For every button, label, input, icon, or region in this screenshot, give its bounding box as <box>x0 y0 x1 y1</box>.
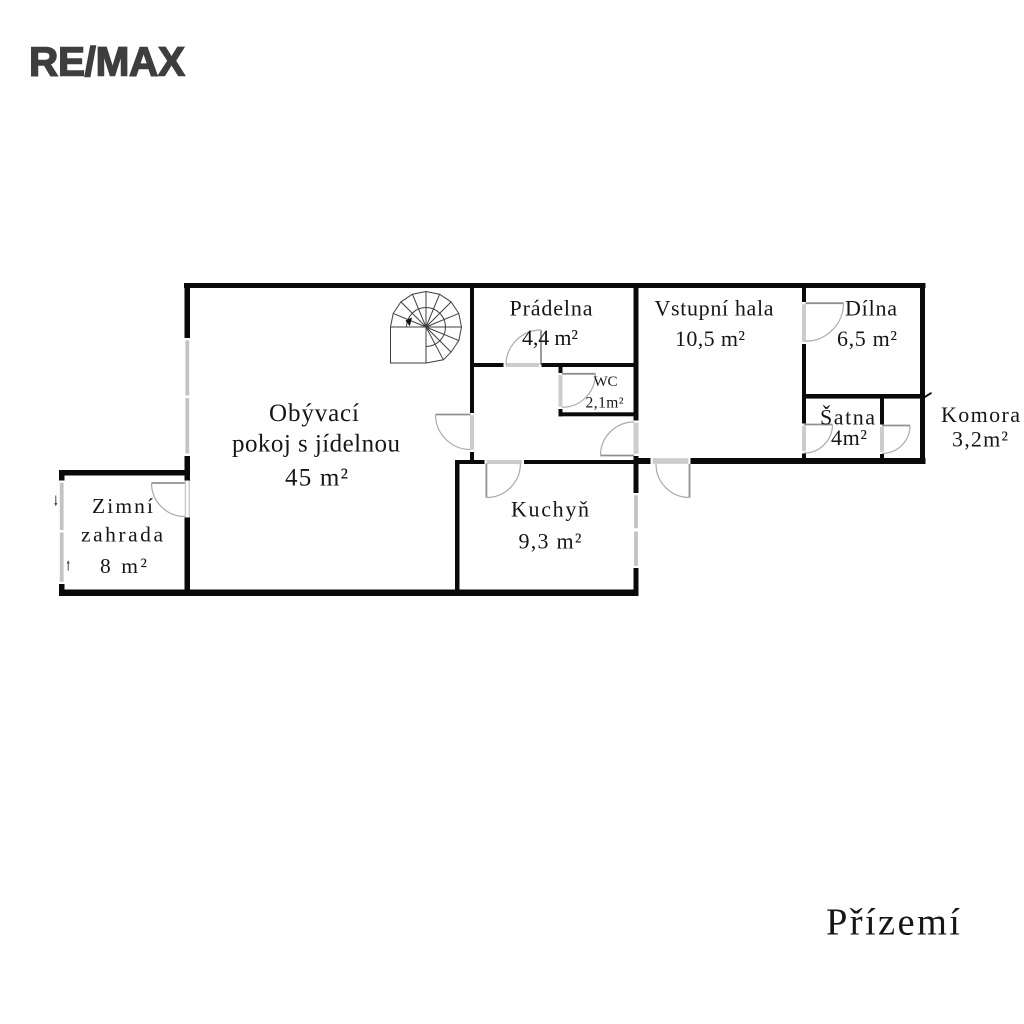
svg-text:6,5 m²: 6,5 m² <box>837 326 897 351</box>
svg-text:45 m²: 45 m² <box>285 465 348 492</box>
svg-text:8 m²: 8 m² <box>100 554 147 578</box>
svg-text:Zimní: Zimní <box>92 494 153 518</box>
svg-text:zahrada: zahrada <box>81 523 163 547</box>
svg-text:Prádelna: Prádelna <box>510 296 593 321</box>
svg-text:4,4 m²: 4,4 m² <box>522 325 578 350</box>
svg-text:10,5 m²: 10,5 m² <box>675 326 745 351</box>
svg-text:Přízemí: Přízemí <box>826 902 960 944</box>
svg-text:Komora: Komora <box>941 402 1020 427</box>
svg-text:Dílna: Dílna <box>845 296 897 321</box>
svg-text:WC: WC <box>594 374 618 390</box>
svg-text:4m²: 4m² <box>831 425 867 450</box>
svg-text:3,2m²: 3,2m² <box>952 427 1008 452</box>
svg-text:Vstupní hala: Vstupní hala <box>655 296 774 321</box>
svg-text:pokoj s jídelnou: pokoj s jídelnou <box>232 431 401 458</box>
svg-text:Kuchyň: Kuchyň <box>511 497 589 522</box>
svg-text:RE/MAX: RE/MAX <box>29 39 185 85</box>
svg-text:2,1m²: 2,1m² <box>586 395 624 412</box>
svg-text:Obývací: Obývací <box>269 400 359 427</box>
svg-text:9,3 m²: 9,3 m² <box>519 529 582 554</box>
